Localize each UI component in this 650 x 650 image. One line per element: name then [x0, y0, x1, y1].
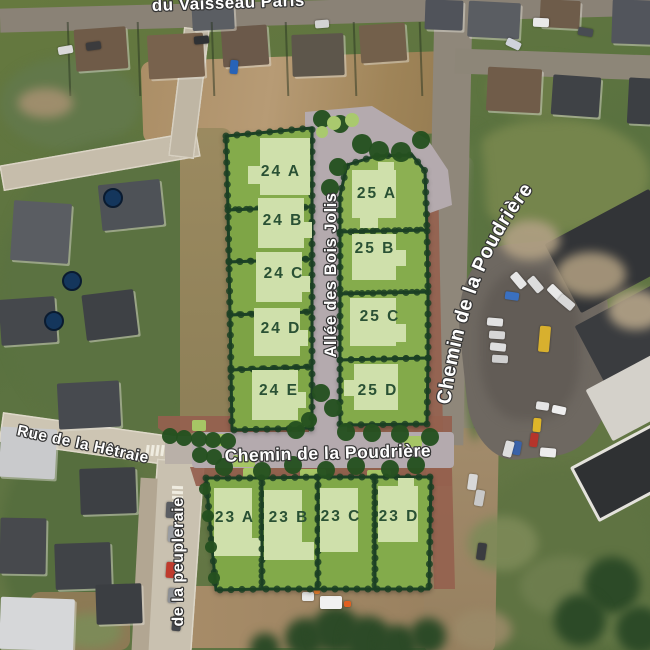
tree-icon: [162, 428, 178, 444]
lot-label: 24 D: [261, 320, 302, 337]
tree-icon: [205, 432, 221, 448]
lot-label: 24 E: [259, 382, 299, 399]
aerial-map: 24 A24 B24 C24 D24 E25 A25 B25 C25 D23 A…: [0, 0, 650, 650]
street-label-poudriere-diagonal: Chemin de la Poudrière: [433, 179, 537, 406]
street-label-vaisseau-paris: du Vaisseau Paris: [151, 0, 305, 15]
tree-icon: [312, 384, 330, 402]
lot-label: 24 B: [263, 212, 304, 229]
tree-icon: [381, 460, 399, 478]
bush-icon: [345, 113, 359, 127]
tree-icon: [205, 541, 217, 553]
lot-label: 23 D: [379, 508, 420, 525]
street-label-peupleraie: de la peupleraie: [170, 498, 187, 627]
lot-label: 25 A: [357, 185, 397, 202]
tree-icon: [391, 142, 411, 162]
lot-label: 25 C: [360, 308, 401, 325]
tree-icon: [176, 430, 192, 446]
tree-icon: [199, 483, 211, 495]
grass-verge: [192, 420, 206, 431]
tree-icon: [208, 572, 220, 584]
lot-label: 23 B: [269, 509, 310, 526]
street-label-hetraie: Rue de la Hêtraie: [15, 422, 150, 467]
tree-icon: [191, 431, 207, 447]
lot-label: 24 C: [264, 265, 305, 282]
tree-icon: [202, 510, 214, 522]
street-label-allee-des-bois-jolis: Allée des Bois Jolis: [322, 193, 340, 358]
lot-label: 24 A: [261, 163, 301, 180]
tree-icon: [317, 461, 335, 479]
tree-icon: [412, 131, 430, 149]
tree-icon: [363, 424, 381, 442]
lot-label: 23 A: [215, 509, 255, 526]
tree-icon: [329, 158, 347, 176]
bush-icon: [316, 126, 328, 138]
tree-icon: [369, 141, 389, 161]
tree-icon: [192, 447, 208, 463]
lot-label: 23 C: [321, 508, 362, 525]
tree-icon: [301, 412, 317, 428]
bush-icon: [327, 116, 341, 130]
tree-icon: [324, 399, 342, 417]
development-plan-overlay: 24 A24 B24 C24 D24 E25 A25 B25 C25 D23 A…: [0, 0, 650, 650]
tree-icon: [337, 423, 355, 441]
lot-label: 25 B: [355, 240, 396, 257]
lot-label: 25 D: [358, 382, 399, 399]
